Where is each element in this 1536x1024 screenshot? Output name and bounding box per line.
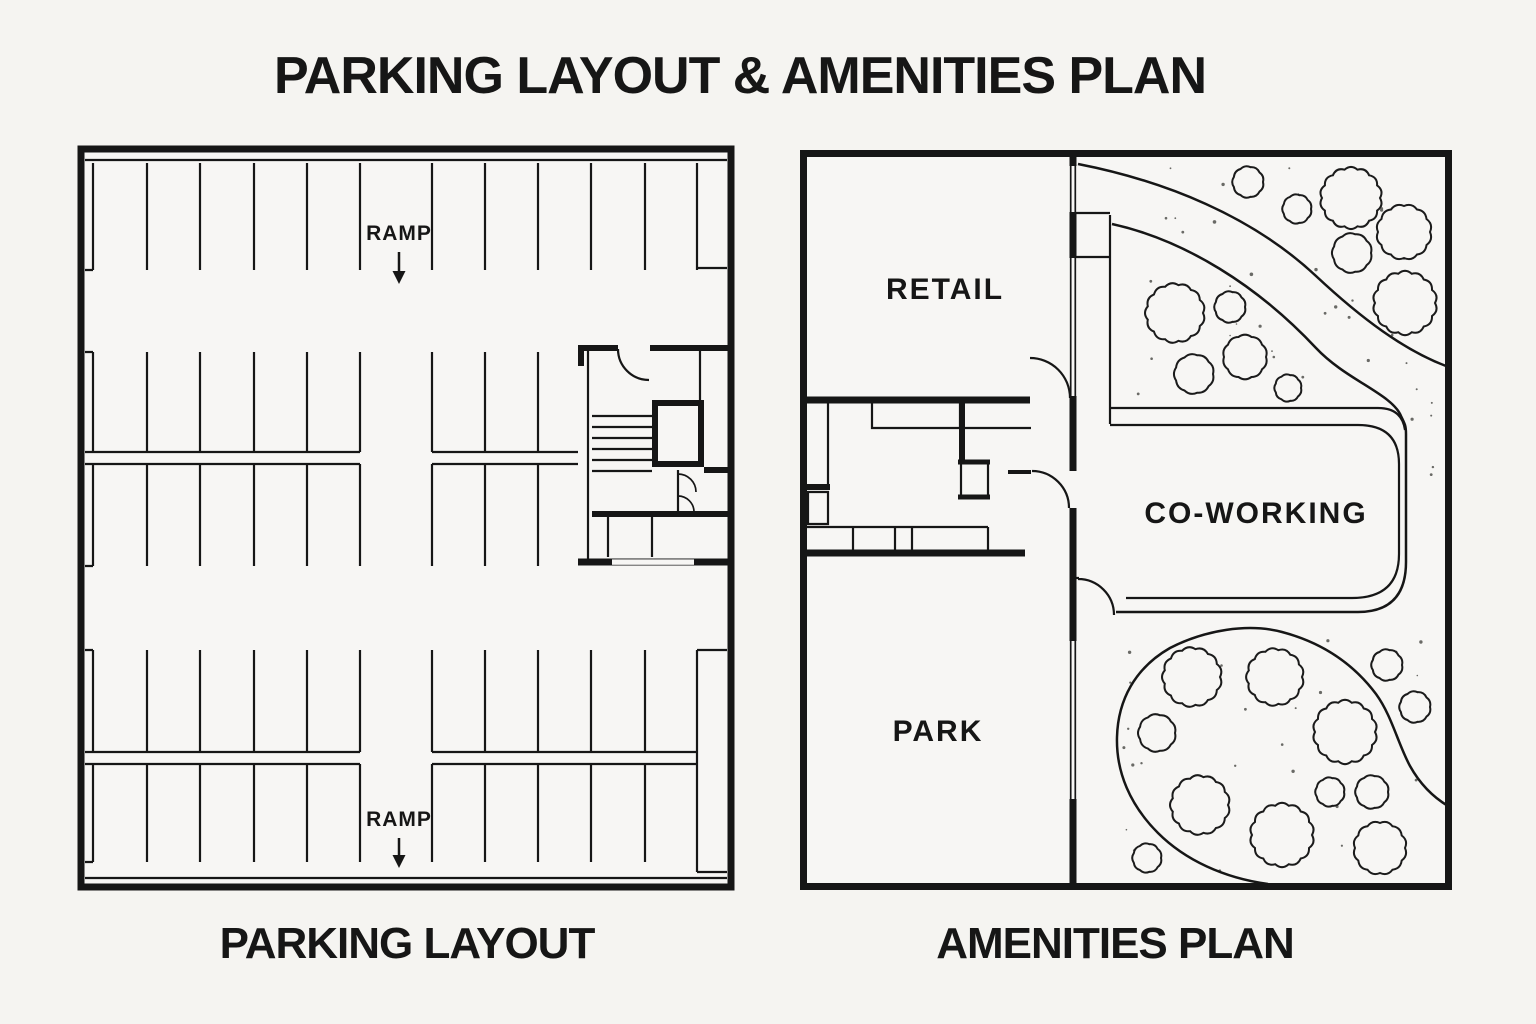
stipple-dot	[1432, 466, 1434, 468]
stipple-dot	[1181, 231, 1184, 234]
stipple-dot	[1150, 357, 1153, 360]
parking-plan: RAMP RAMP PARKING LAYOUT	[81, 149, 731, 968]
tree-icon	[1313, 700, 1376, 764]
parking-outer-wall	[81, 149, 731, 887]
stipple-dot	[1419, 640, 1422, 643]
stipple-dot	[1229, 335, 1231, 337]
stipple-dot	[1127, 728, 1129, 730]
stipple-dot	[1319, 691, 1322, 694]
stipple-dot	[1430, 415, 1432, 417]
tree-icon	[1373, 271, 1436, 335]
tree-icon	[1232, 166, 1263, 197]
stipple-dot	[1271, 350, 1273, 352]
stipple-dot	[1259, 325, 1262, 328]
stipple-dot	[1131, 763, 1134, 766]
stipple-dot	[1213, 220, 1217, 224]
stipple-dot	[1234, 765, 1236, 767]
stipple-dot	[1221, 183, 1224, 186]
stipple-dot	[1288, 167, 1290, 169]
stipple-dot	[1334, 305, 1337, 308]
tree-icon	[1174, 354, 1213, 394]
tree-icon	[1132, 843, 1161, 872]
ramp-label-bottom: RAMP	[366, 808, 432, 831]
stipple-dot	[1250, 273, 1254, 277]
tree-icon	[1138, 714, 1175, 752]
amenities-plan: RETAIL CO-WORKING PARK AMENITIES PLAN	[804, 150, 1449, 968]
stipple-dot	[1174, 217, 1176, 219]
parking-caption: PARKING LAYOUT	[220, 919, 596, 968]
tree-icon	[1162, 647, 1221, 707]
floor-plan-sheet: PARKING LAYOUT & AMENITIES PLAN RAMP RAM…	[0, 0, 1536, 1024]
stipple-dot	[1140, 762, 1142, 764]
plan-drawing: PARKING LAYOUT & AMENITIES PLAN RAMP RAM…	[0, 0, 1536, 1024]
stipple-dot	[1341, 845, 1343, 847]
stipple-dot	[1122, 746, 1125, 749]
stipple-dot	[1170, 167, 1172, 169]
tree-icon	[1354, 822, 1406, 874]
stipple-dot	[1406, 362, 1408, 364]
stipple-dot	[1281, 743, 1284, 746]
tree-icon	[1371, 649, 1402, 680]
tree-icon	[1246, 648, 1303, 706]
stipple-dot	[1165, 217, 1168, 220]
tree-icon	[1377, 205, 1431, 259]
tree-icon	[1214, 291, 1245, 322]
stipple-dot	[1236, 323, 1238, 325]
tree-icon	[1399, 691, 1430, 722]
stipple-dot	[1348, 316, 1351, 319]
stipple-dot	[1301, 376, 1304, 379]
tree-icon	[1355, 775, 1388, 809]
stipple-dot	[1137, 393, 1140, 396]
coworking-label: CO-WORKING	[1144, 497, 1367, 530]
stipple-dot	[1128, 651, 1131, 654]
tree-icon	[1320, 167, 1381, 229]
stipple-dot	[1367, 359, 1370, 362]
stipple-dot	[1351, 299, 1353, 301]
stipple-dot	[1431, 402, 1433, 404]
tree-icon	[1223, 335, 1266, 380]
stipple-dot	[1411, 418, 1414, 421]
stair-door-inset	[612, 559, 694, 564]
tree-icon	[1315, 777, 1344, 806]
tree-icon	[1332, 233, 1371, 273]
stipple-dot	[1273, 356, 1276, 359]
stipple-dot	[1416, 388, 1418, 390]
stipple-dot	[1314, 268, 1317, 271]
tree-icon	[1170, 775, 1229, 835]
tree-icon	[1274, 374, 1301, 401]
tree-icon	[1250, 803, 1313, 867]
amenities-caption: AMENITIES PLAN	[936, 919, 1294, 968]
stipple-dot	[1430, 473, 1433, 476]
stipple-dot	[1324, 312, 1327, 315]
retail-label: RETAIL	[886, 273, 1004, 306]
stipple-dot	[1229, 285, 1231, 287]
stipple-dot	[1126, 829, 1128, 831]
tree-icon	[1282, 194, 1311, 223]
tree-icon	[1145, 283, 1204, 343]
stipple-dot	[1291, 770, 1294, 773]
stipple-dot	[1417, 675, 1419, 677]
stipple-dot	[1149, 280, 1152, 283]
ramp-label-top: RAMP	[366, 222, 432, 245]
page-title: PARKING LAYOUT & AMENITIES PLAN	[274, 47, 1206, 105]
park-label: PARK	[893, 715, 984, 748]
stipple-dot	[1295, 707, 1297, 709]
stipple-dot	[1326, 639, 1329, 642]
stipple-dot	[1244, 708, 1247, 711]
